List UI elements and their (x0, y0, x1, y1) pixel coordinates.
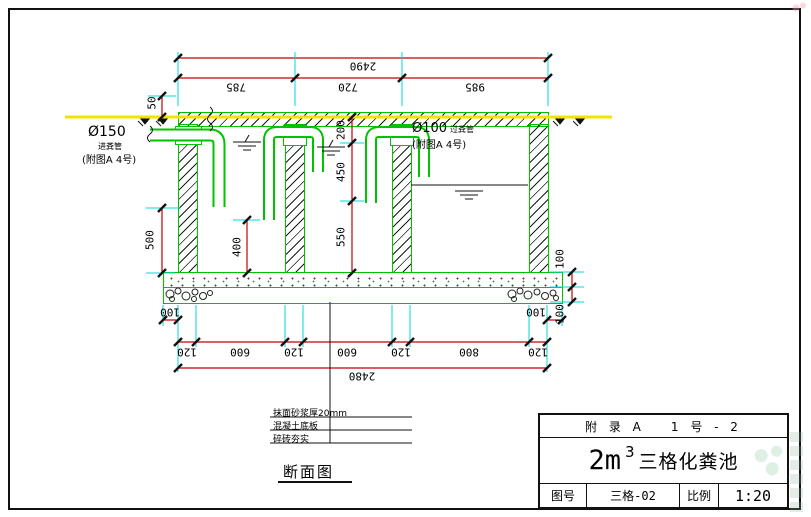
water-level-icon-comp3 (411, 185, 528, 199)
dim-bottom-segment: 800 (459, 346, 479, 359)
inlet-diameter-label: Ø150 (88, 124, 126, 140)
dimension-ticks (158, 54, 576, 372)
transfer-ref-label: (附图A 4号) (412, 136, 466, 151)
figure-number-value: 三格-02 (587, 484, 680, 507)
dim-mid-chain: 450 (335, 162, 348, 182)
inlet-ref-label: (附图A 4号) (82, 151, 136, 166)
volume-exponent: 3 (625, 443, 635, 461)
dimension-lines (162, 58, 572, 368)
title-block: 附 录 A 1 号 - 2 2m 3 三格化粪池 图号 三格-02 比例 1:2… (538, 413, 789, 509)
transfer-pipe-1 (269, 132, 318, 221)
cad-drawing-sheet: 2490 785 720 985 50 500 400 200 450 550 … (0, 0, 811, 517)
dim-bottom-segment: 600 (230, 346, 250, 359)
dim-bottom-segment: 600 (337, 346, 357, 359)
dim-bottom-segment: 120 (391, 346, 411, 359)
dim-slab-thickness: 100 (554, 249, 567, 269)
appendix-label: 附 录 A (585, 418, 645, 435)
dim-top-segment: 985 (465, 81, 485, 94)
transfer-diameter-label: Ø100 (412, 121, 447, 136)
title-block-footer: 图号 三格-02 比例 1:20 (540, 483, 787, 507)
sheet-number: 1 号 - 2 (671, 418, 742, 435)
dim-top-segment: 720 (338, 81, 358, 94)
dim-inlet-drop: 500 (144, 230, 157, 250)
dim-bottom-segment: 120 (284, 346, 304, 359)
note-rubble: 碎砖夯实 (273, 432, 309, 445)
figure-number-label: 图号 (540, 484, 587, 507)
dim-mid-chain: 550 (335, 227, 348, 247)
dim-bottom-total: 2480 (349, 370, 376, 383)
dim-bottom-segment: 120 (177, 346, 197, 359)
dim-cover-height: 50 (146, 96, 159, 109)
note-concrete-slab: 混凝土底板 (273, 419, 318, 432)
drawing-title-text: 三格化粪池 (639, 447, 739, 474)
dim-bottom-segment: 120 (528, 346, 548, 359)
drawing-title: 2m 3 三格化粪池 (540, 438, 787, 483)
dim-mid-chain: 200 (335, 120, 348, 140)
inlet-pipe (150, 135, 219, 208)
volume-value: 2m (588, 445, 621, 476)
dim-top-total: 2490 (350, 60, 377, 73)
extension-lines (146, 52, 584, 372)
ground-level-icon (138, 119, 584, 126)
dim-cushion-thickness: 100 (554, 304, 567, 324)
title-block-header: 附 录 A 1 号 - 2 (540, 415, 787, 438)
section-title: 断面图 (283, 461, 334, 482)
scale-value: 1:20 (719, 484, 787, 507)
dim-footing-overhang-right: 100 (526, 306, 546, 319)
dim-top-segment: 785 (226, 81, 246, 94)
note-plaster: 抹面砂浆厚20mm (273, 406, 347, 419)
rubble-stones (166, 288, 559, 302)
dim-footing-overhang-left: 100 (160, 306, 180, 319)
dim-comp1-pipe-depth: 400 (231, 237, 244, 257)
scale-label: 比例 (680, 484, 719, 507)
transfer-pipe-label: 过粪管 (450, 124, 474, 135)
water-level-icon-comp1 (233, 135, 261, 150)
